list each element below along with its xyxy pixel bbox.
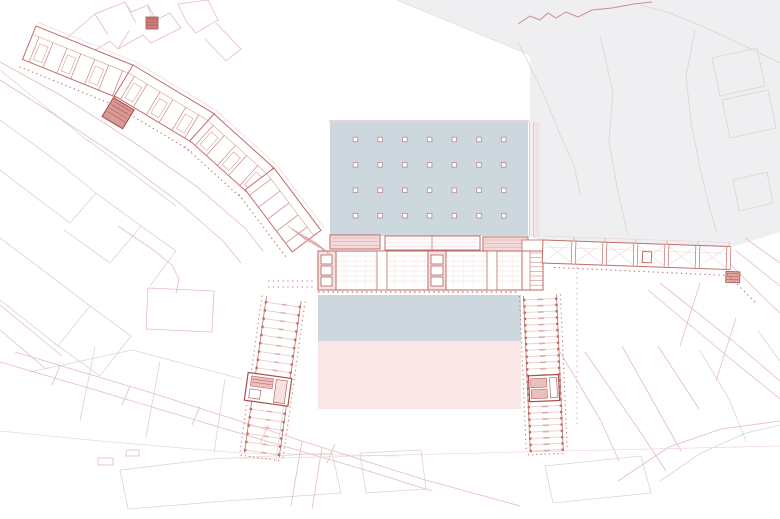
courtyard-fields (318, 295, 521, 409)
main-band-building (318, 235, 543, 290)
site-plan (0, 0, 780, 519)
hall-roof-field (329, 121, 540, 237)
site-plan-canvas (0, 0, 780, 519)
